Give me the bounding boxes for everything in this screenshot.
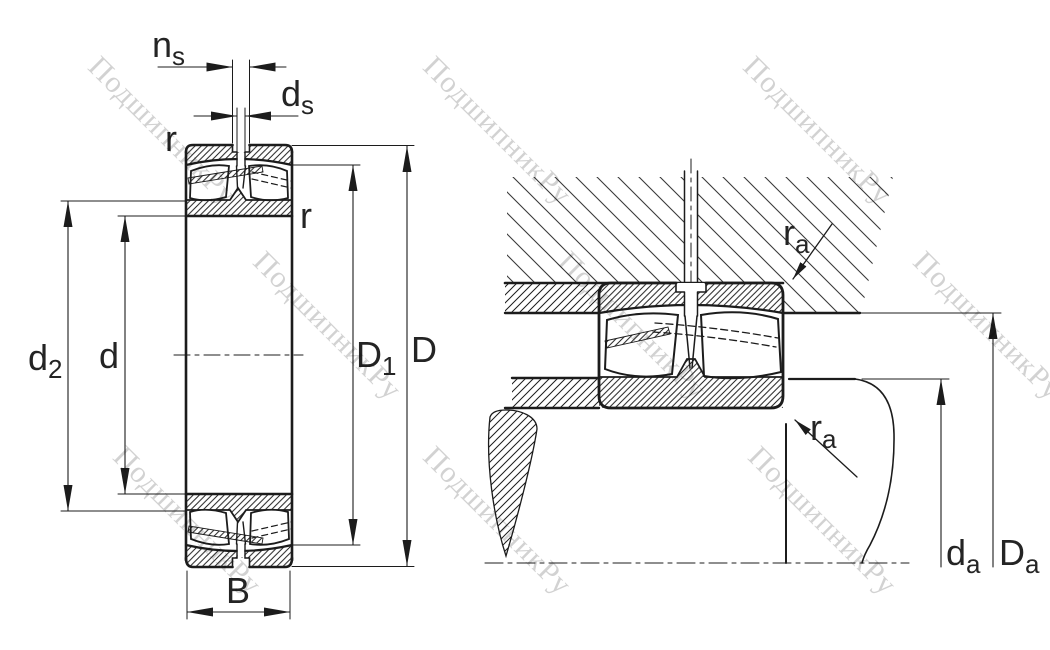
left-view: ns ds r r d2 d D1 D B [28,24,437,619]
label-D: D [411,329,437,370]
label-d: d [99,335,119,376]
cover-ring [505,284,599,313]
outer-ring-bottom [186,544,292,568]
label-D1: D1 [356,334,396,381]
label-ds: ds [281,73,314,120]
shaft-section [489,410,537,556]
right-view: ra ra da Da [485,159,1040,579]
label-r-left: r [165,118,177,159]
drawing-page: ns ds r r d2 d D1 D B [0,0,1050,650]
shaft-sleeve [505,378,599,408]
label-d2: d2 [28,337,63,384]
label-ns: ns [152,24,185,71]
dimension-ns [158,60,286,143]
outer-ring-top [186,145,292,166]
dimension-d2 [61,201,186,511]
label-Da: Da [999,532,1040,579]
dimension-da: da [862,379,981,579]
label-da: da [946,532,981,579]
annotation-ra-bottom: ra [795,407,857,477]
label-ra-bottom: ra [810,407,837,454]
shaft-shoulder [786,379,894,563]
mounted-bearing [599,283,783,408]
bearing-drawing: ns ds r r d2 d D1 D B [0,0,1050,650]
label-B: B [226,570,250,611]
label-r-right: r [300,195,312,236]
